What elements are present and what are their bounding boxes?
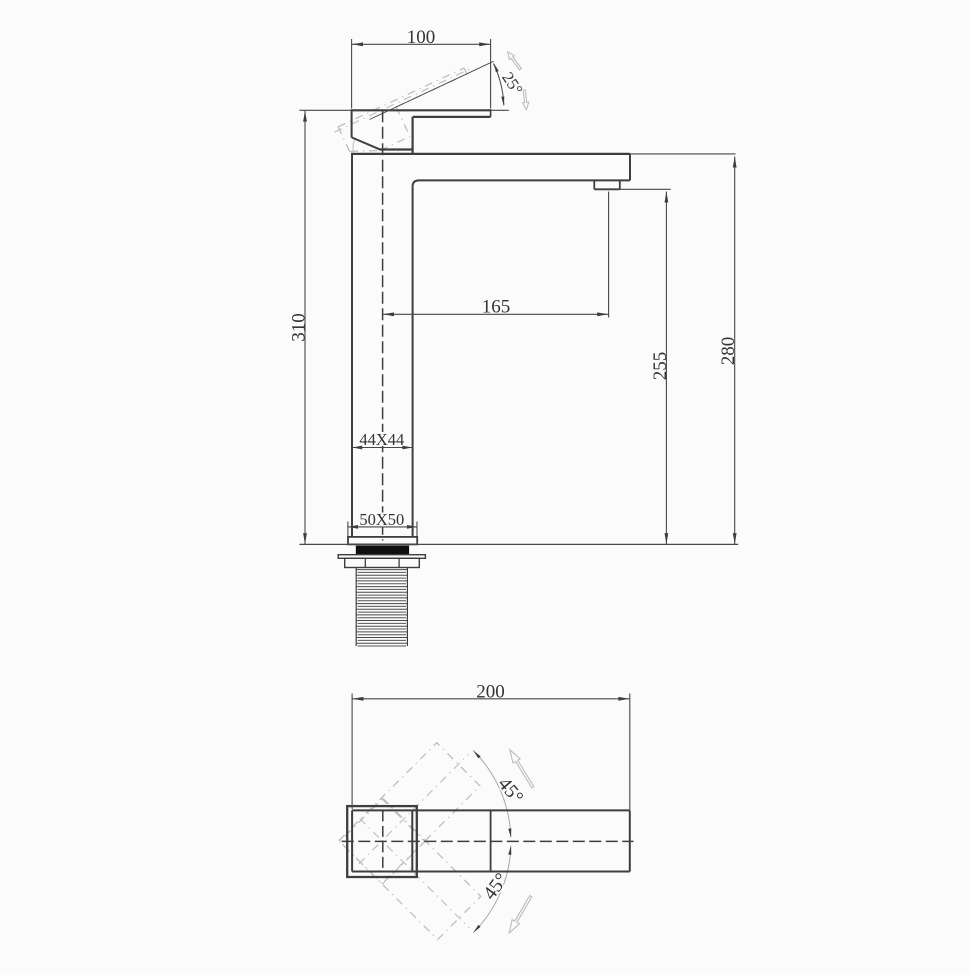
svg-text:44X44: 44X44: [359, 430, 404, 449]
svg-text:310: 310: [288, 313, 309, 342]
svg-text:255: 255: [650, 352, 671, 381]
svg-text:165: 165: [482, 296, 511, 317]
svg-text:200: 200: [476, 682, 505, 703]
svg-text:100: 100: [407, 27, 436, 48]
svg-text:280: 280: [718, 337, 739, 366]
